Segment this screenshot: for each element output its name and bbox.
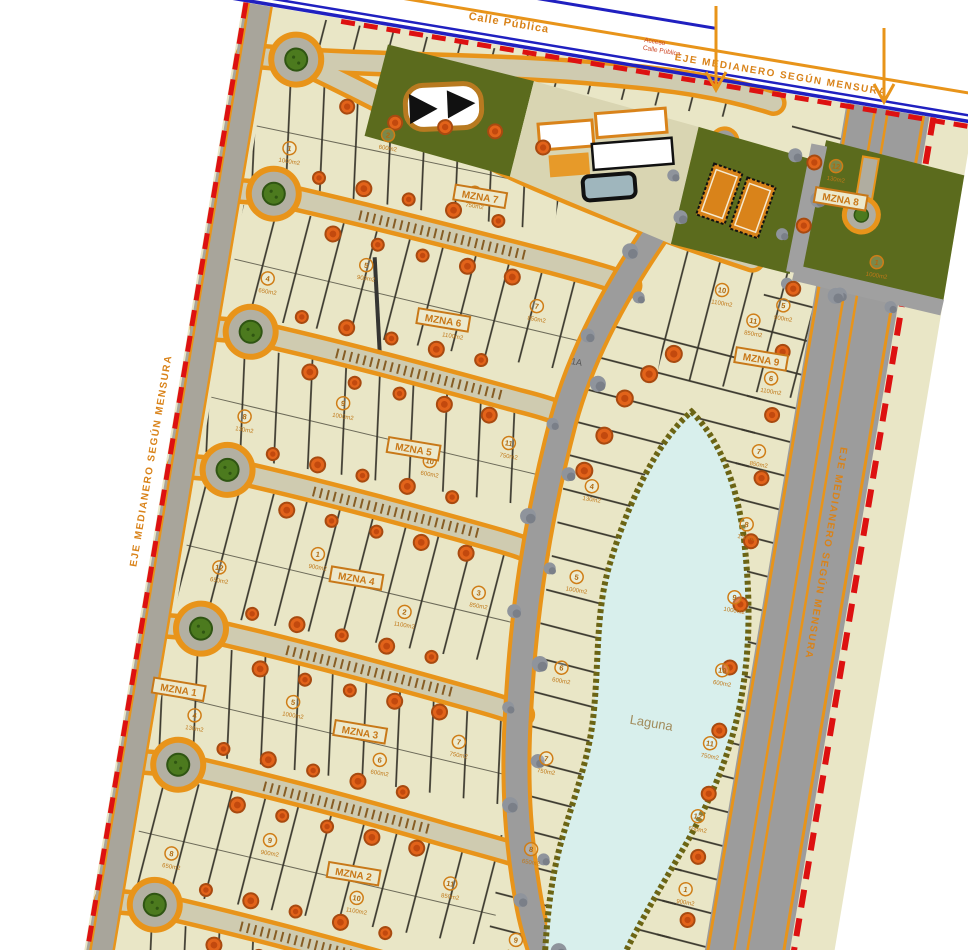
site-plan-map: 1A EJE MEDIANERO SEGÚN MENSURA EJE MEDIA… [0,0,968,950]
road-name-label: 1A [570,356,583,368]
svg-text:10: 10 [717,665,727,675]
svg-text:11: 11 [705,738,714,748]
svg-text:12: 12 [693,811,703,821]
svg-text:11: 11 [504,438,513,448]
public-street-label: Calle Pública [468,11,550,36]
service-pool [582,173,636,201]
svg-text:11: 11 [749,316,758,326]
svg-text:12: 12 [214,563,224,573]
svg-text:10: 10 [352,893,362,903]
svg-text:12: 12 [831,161,841,171]
svg-text:10: 10 [717,285,727,295]
plan-root: 1A EJE MEDIANERO SEGÚN MENSURA EJE MEDIA… [0,0,968,950]
svg-text:11: 11 [446,879,455,889]
